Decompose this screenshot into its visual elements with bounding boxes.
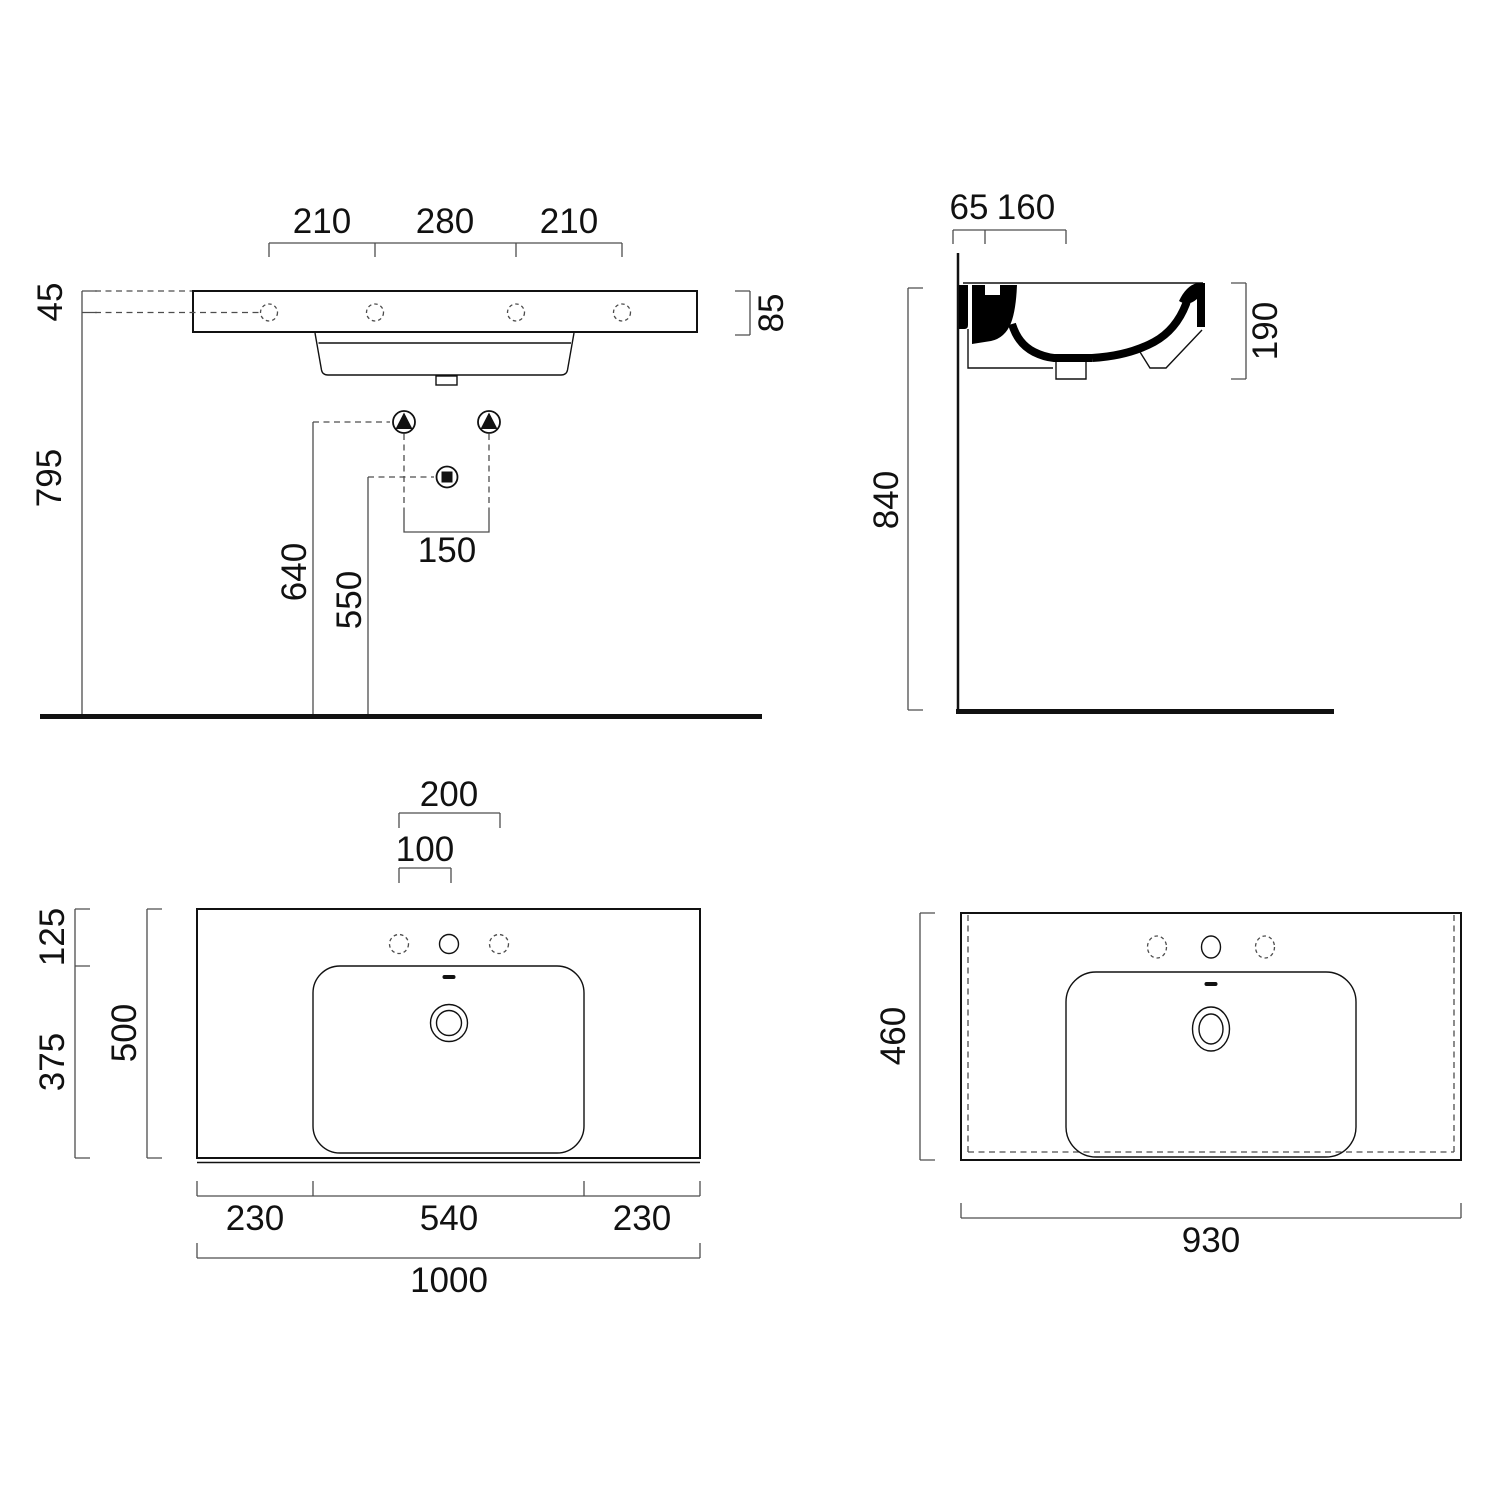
dim-label-floor-to-hole: 795 xyxy=(30,449,69,507)
dim-label-bowl-offset-left: 230 xyxy=(226,1199,284,1238)
dim-label-supply-height: 640 xyxy=(275,543,314,601)
technical-drawing-page: 210 280 210 45 795 85 xyxy=(0,0,1500,1500)
dim-label-supply-spacing: 150 xyxy=(418,531,476,570)
waste-outlet-symbol xyxy=(437,467,458,488)
dim-label-overall-depth: 500 xyxy=(105,1004,144,1062)
technical-drawing-canvas: 210 280 210 45 795 85 xyxy=(0,0,1500,1500)
dim-label-bowl-offset-right: 230 xyxy=(613,1199,671,1238)
overflow-slot xyxy=(443,975,456,979)
dim-label-side-hole-spacing: 200 xyxy=(420,775,478,814)
dim-label-bottom-width: 930 xyxy=(1182,1221,1240,1260)
dim-label-hole-offset: 100 xyxy=(396,830,454,869)
water-supply-symbol-right xyxy=(478,411,500,433)
section-back-upstand xyxy=(959,285,968,329)
dim-label-hole-spacing-left: 210 xyxy=(293,202,351,241)
dim-label-waste-height: 550 xyxy=(330,571,369,629)
overflow-slot-bottom xyxy=(1205,982,1218,986)
dim-label-hole-spacing-right: 210 xyxy=(540,202,598,241)
dim-label-deck-depth: 160 xyxy=(997,188,1055,227)
dim-label-bottom-depth: 460 xyxy=(874,1007,913,1065)
dim-label-rear-edge-to-bowl: 125 xyxy=(33,908,72,966)
dim-label-bowl-depth: 375 xyxy=(33,1033,72,1091)
dim-label-wall-offset: 65 xyxy=(950,188,989,227)
water-supply-symbol-left xyxy=(393,411,415,433)
dim-label-floor-to-rim: 840 xyxy=(867,471,906,529)
dim-label-bowl-width: 540 xyxy=(420,1199,478,1238)
dim-label-slab-height: 85 xyxy=(752,294,791,333)
dim-label-overall-width: 1000 xyxy=(410,1261,488,1300)
dim-label-hole-spacing-center: 280 xyxy=(416,202,474,241)
drawing-background xyxy=(0,0,1500,1500)
dim-label-basin-depth: 190 xyxy=(1246,302,1285,360)
dim-label-rim-to-hole: 45 xyxy=(31,283,70,322)
